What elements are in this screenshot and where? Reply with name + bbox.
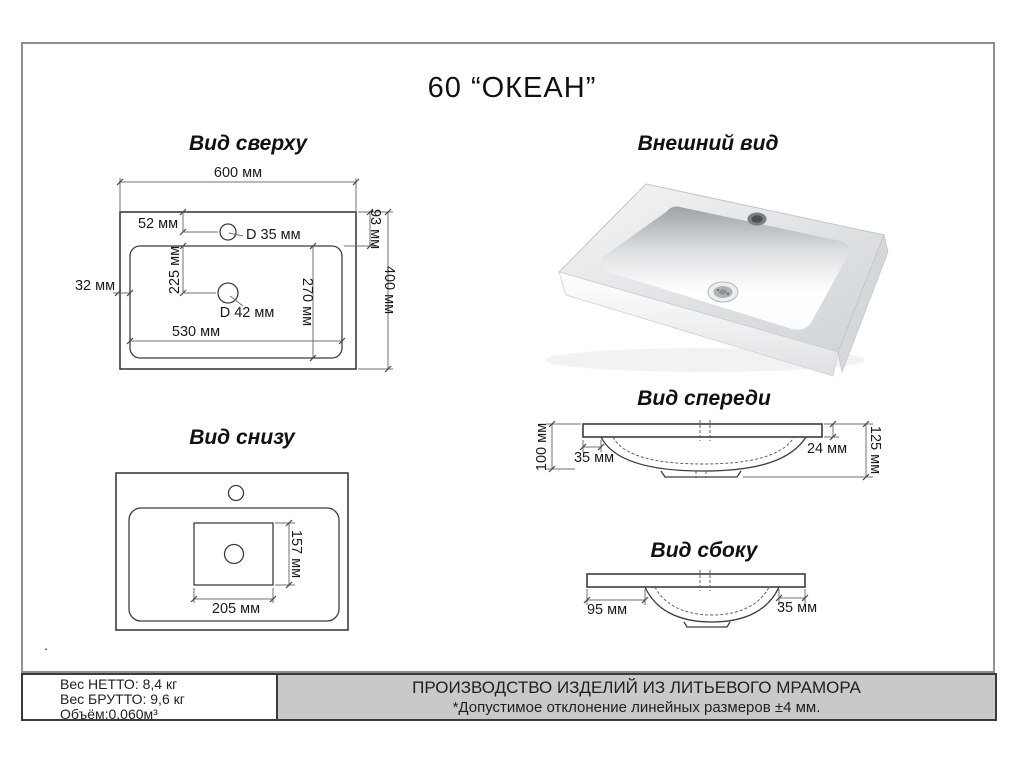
spec-sheet-page: 60 “ОКЕАН” Вид сверху Внешний вид Вид сн… bbox=[0, 0, 1024, 768]
dim-label-24: 24 мм bbox=[807, 441, 847, 457]
dim-label-157: 157 мм bbox=[288, 530, 304, 578]
stray-dot: . bbox=[44, 637, 48, 653]
side-view-drawing: 95 мм 35 мм bbox=[584, 570, 817, 627]
bottom-view-drawing: 157 мм 205 мм bbox=[116, 473, 348, 630]
technical-drawing-canvas: 600 мм 52 мм D 35 мм 93 мм 400 мм 32 мм bbox=[0, 0, 1024, 768]
dim-label-d42: D 42 мм bbox=[220, 305, 275, 321]
production-note-line1: ПРОИЗВОДСТВО ИЗДЕЛИЙ ИЗ ЛИТЬЕВОГО МРАМОР… bbox=[278, 678, 995, 698]
bowl-outer-front bbox=[601, 437, 806, 471]
dim-label-52: 52 мм bbox=[138, 216, 178, 232]
dim-label-205: 205 мм bbox=[212, 601, 260, 617]
dim-label-100: 100 мм bbox=[534, 423, 550, 471]
gross-weight: Вес БРУТТО: 9,6 кг bbox=[60, 692, 272, 707]
volume: Объём:0,060м³ bbox=[60, 707, 272, 722]
rim-section-side bbox=[587, 574, 805, 587]
dim-label-d35: D 35 мм bbox=[246, 227, 301, 243]
dim-label-93: 93 мм bbox=[367, 209, 383, 249]
dim-label-225: 225 мм bbox=[167, 246, 183, 294]
weight-info-box: Вес НЕТТО: 8,4 кг Вес БРУТТО: 9,6 кг Объ… bbox=[21, 673, 278, 721]
dim-label-35-side: 35 мм bbox=[777, 600, 817, 616]
net-weight: Вес НЕТТО: 8,4 кг bbox=[60, 677, 272, 692]
drain-boss-front bbox=[661, 471, 741, 477]
rim-section-front bbox=[583, 424, 822, 437]
bowl-inner-side bbox=[655, 587, 769, 615]
drain-boss-side bbox=[684, 622, 730, 627]
dim-label-400: 400 мм bbox=[381, 266, 397, 314]
bowl-outer-side bbox=[645, 587, 779, 622]
production-note-line2: *Допустимое отклонение линейных размеров… bbox=[278, 699, 995, 716]
dim-label-270: 270 мм bbox=[299, 278, 315, 326]
production-note-box: ПРОИЗВОДСТВО ИЗДЕЛИЙ ИЗ ЛИТЬЕВОГО МРАМОР… bbox=[276, 673, 997, 721]
dim-label-530: 530 мм bbox=[172, 324, 220, 340]
dim-label-32: 32 мм bbox=[75, 278, 115, 294]
dim-label-125: 125 мм bbox=[867, 426, 883, 474]
dim-label-600: 600 мм bbox=[214, 165, 262, 181]
top-view-drawing: 600 мм 52 мм D 35 мм 93 мм 400 мм 32 мм bbox=[75, 165, 397, 372]
sink-photo bbox=[545, 184, 888, 376]
dim-label-95: 95 мм bbox=[587, 602, 627, 618]
bowl-inner-front bbox=[613, 437, 794, 464]
front-view-drawing: 100 мм 35 мм 24 мм 125 мм bbox=[534, 420, 883, 480]
dim-label-35-front: 35 мм bbox=[574, 450, 614, 466]
